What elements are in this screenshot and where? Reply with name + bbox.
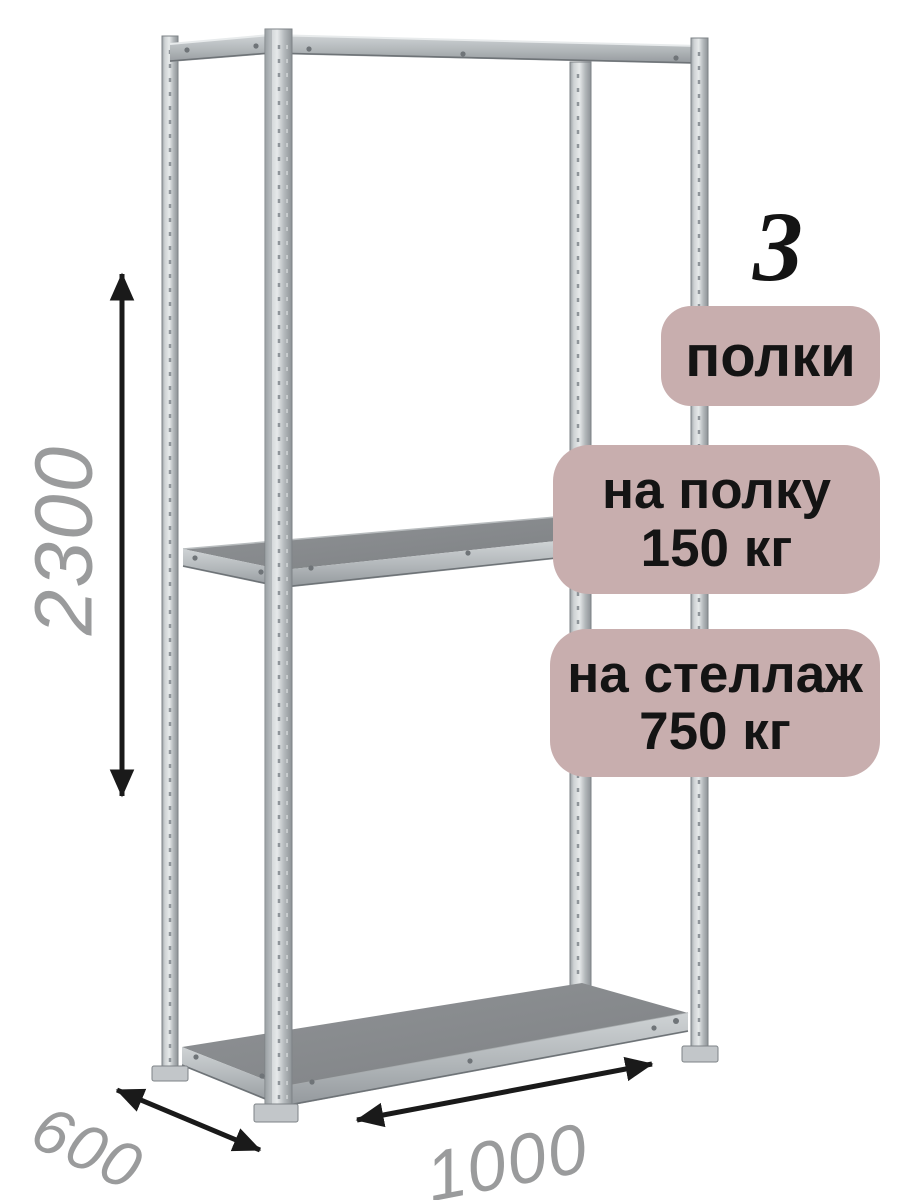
rack-post-rear-left [162,36,178,1080]
shelves-count-badge-label: полки [685,323,856,390]
rack-load-line1: на стеллаж [567,646,863,703]
rack-load-badge: на стеллаж 750 кг [550,629,880,777]
height-dimension-label: 2300 [19,445,110,636]
product-image: 2300 600 1000 3 полки на полку 150 кг на… [0,0,900,1200]
shelves-count-badge: полки [661,306,880,406]
width-dimension-label: 1000 [419,1108,595,1200]
depth-dimension-label: 600 [21,1091,154,1200]
bottom-shelf [182,983,688,1107]
shelves-count-number: 3 [713,194,843,299]
middle-shelf [183,517,556,588]
shelf-load-line1: на полку [602,462,831,519]
top-shelf [170,35,700,64]
shelving-rack-illustration: 2300 600 1000 [0,0,900,1200]
shelf-load-line2: 150 кг [641,520,793,577]
rack-load-line2: 750 кг [639,703,791,760]
rack-post-front-left [265,29,292,1121]
shelf-load-badge: на полку 150 кг [553,445,880,594]
